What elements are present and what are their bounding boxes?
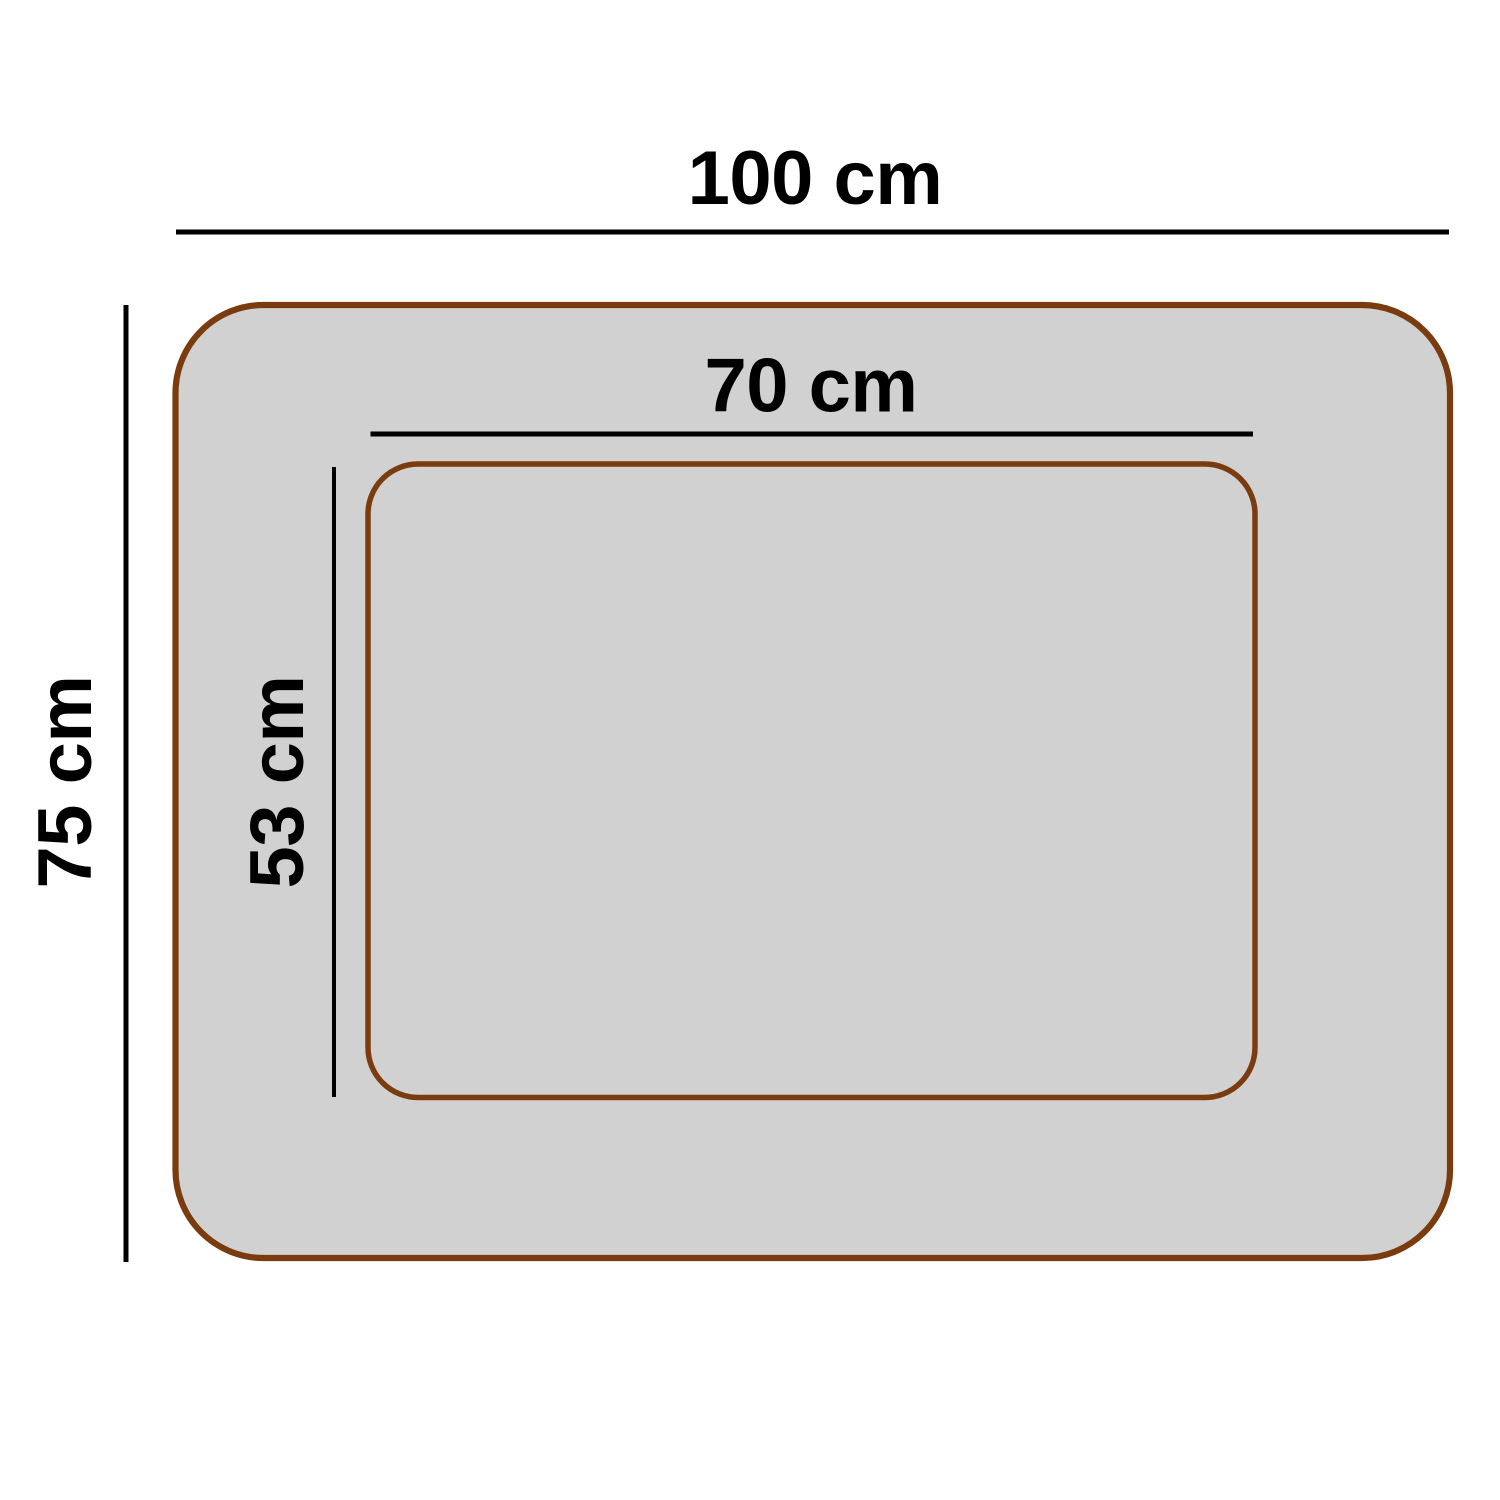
svg-text:100 cm: 100 cm bbox=[688, 136, 943, 221]
svg-text:70 cm: 70 cm bbox=[705, 344, 918, 429]
svg-text:75 cm: 75 cm bbox=[23, 676, 108, 889]
svg-text:53 cm: 53 cm bbox=[235, 676, 320, 889]
